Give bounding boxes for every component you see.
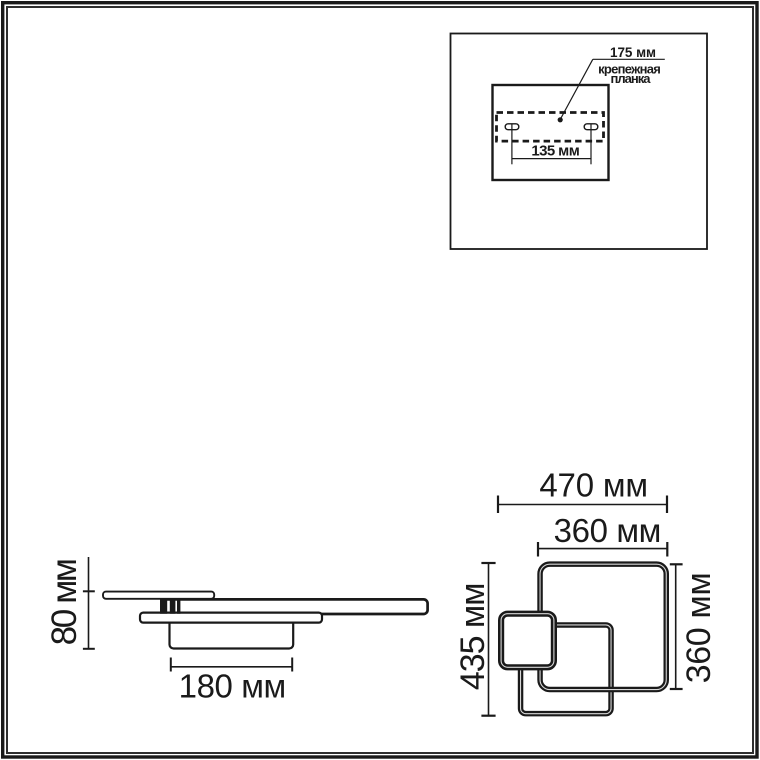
svg-text:435 мм: 435 мм	[454, 582, 492, 690]
svg-text:360 мм: 360 мм	[554, 512, 662, 549]
svg-text:планка: планка	[611, 71, 652, 86]
svg-text:470 мм: 470 мм	[539, 467, 648, 504]
svg-text:135 мм: 135 мм	[531, 143, 579, 160]
svg-text:180 мм: 180 мм	[179, 667, 287, 704]
svg-text:175 мм: 175 мм	[610, 45, 656, 60]
svg-text:360 мм: 360 мм	[680, 572, 718, 683]
svg-text:80 мм: 80 мм	[45, 558, 84, 645]
